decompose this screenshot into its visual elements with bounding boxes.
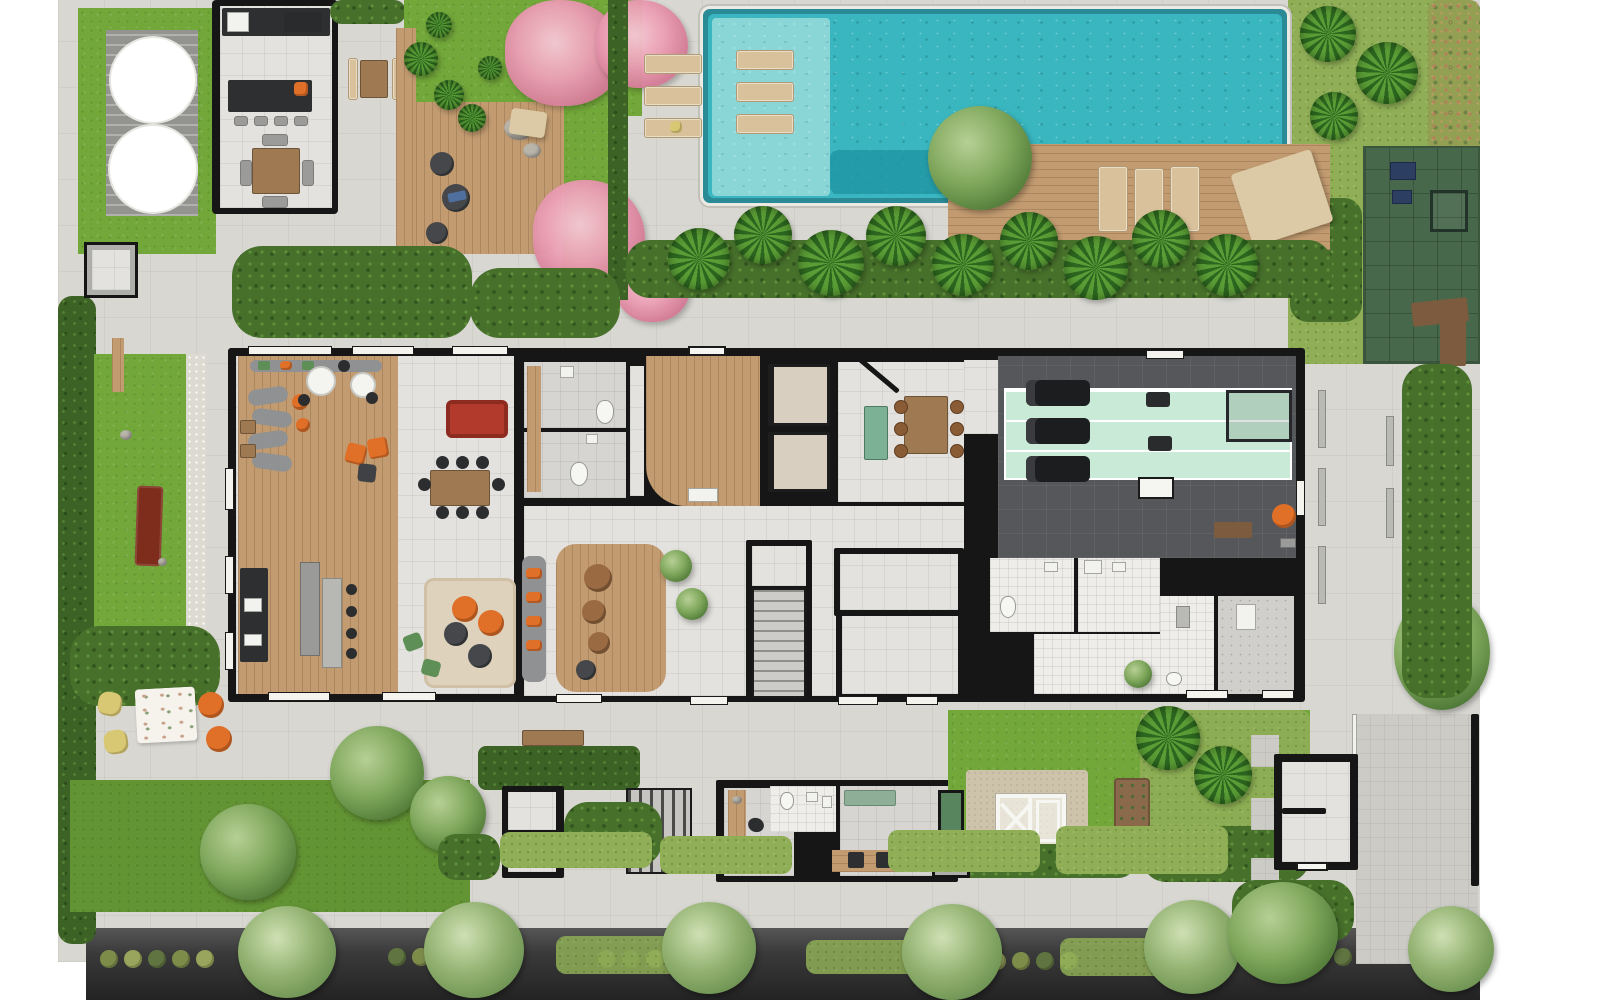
verge-grass (806, 940, 918, 974)
street-tree (902, 904, 1002, 1000)
patio-pouf (198, 692, 224, 718)
shrub-dot (148, 950, 166, 968)
shrub-dot (388, 948, 406, 966)
garden-shrub (438, 834, 500, 880)
patio-pouf (96, 690, 124, 718)
street-tree (1408, 906, 1494, 992)
layer-south-garden-street (0, 0, 1618, 1000)
planting-strip (1056, 826, 1228, 874)
street-bush (1228, 882, 1338, 984)
planting-strip (660, 836, 792, 874)
shrub-dot (1036, 952, 1054, 970)
patio-pouf (102, 728, 129, 755)
picnic-blanket (135, 686, 198, 743)
shrub-dot (100, 950, 118, 968)
shrub-dot (124, 950, 142, 968)
street-tree (662, 902, 756, 994)
site-plan-canvas (0, 0, 1618, 1000)
street-tree (238, 906, 336, 998)
shrub-dot (172, 950, 190, 968)
shrub-dot (1334, 948, 1352, 966)
patio-pouf (206, 726, 232, 752)
shrub-dot (1012, 952, 1030, 970)
planting-strip (888, 830, 1040, 872)
shrub-dot (196, 950, 214, 968)
street-tree (424, 902, 524, 998)
garden-tree (200, 804, 296, 900)
planting-strip (500, 832, 652, 868)
street-tree (1144, 900, 1240, 994)
